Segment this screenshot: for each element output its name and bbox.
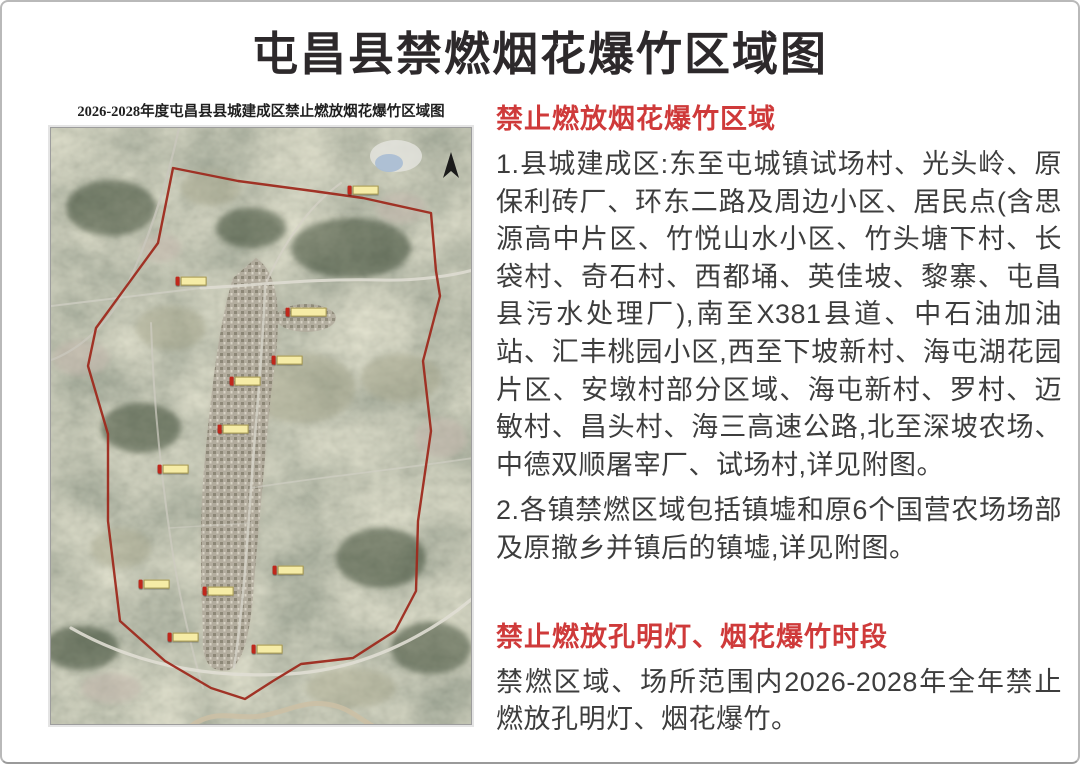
marker-label bbox=[352, 185, 378, 194]
paragraph-town-areas: 2.各镇禁燃区域包括镇墟和原6个国营农场场部及原撤乡并镇后的镇墟,详见附图。 bbox=[496, 492, 1062, 567]
pin-icon bbox=[252, 644, 256, 653]
pin-icon bbox=[158, 465, 162, 474]
pin-icon bbox=[272, 356, 276, 365]
map-marker bbox=[168, 632, 199, 641]
map-marker bbox=[273, 566, 304, 575]
paragraph-county-built-area: 1.县城建成区:东至屯城镇试场村、光头岭、原保利砖厂、环东二路及周边小区、居民点… bbox=[496, 146, 1062, 484]
pin-icon bbox=[285, 308, 289, 317]
marker-label bbox=[278, 566, 304, 575]
map-marker bbox=[218, 425, 249, 434]
pin-icon bbox=[203, 586, 207, 595]
section-zones: 禁止燃放烟花爆竹区域 1.县城建成区:东至屯城镇试场村、光头岭、原保利砖厂、环东… bbox=[496, 100, 1062, 568]
section-period-heading: 禁止燃放孔明灯、烟花爆竹时段 bbox=[496, 618, 1062, 656]
map-marker bbox=[175, 277, 206, 286]
pin-icon bbox=[168, 632, 172, 641]
marker-label bbox=[173, 632, 199, 641]
map-marker bbox=[203, 586, 234, 595]
marker-label bbox=[180, 277, 206, 286]
paragraph-period: 禁燃区域、场所范围内2026-2028年全年禁止燃放孔明灯、烟花爆竹。 bbox=[496, 664, 1062, 739]
map-marker bbox=[138, 579, 169, 588]
map-marker bbox=[347, 185, 378, 194]
content-column: 禁止燃放烟花爆竹区域 1.县城建成区:东至屯城镇试场村、光头岭、原保利砖厂、环东… bbox=[496, 100, 1062, 739]
map-marker bbox=[252, 644, 283, 653]
marker-label bbox=[277, 356, 303, 365]
page-title: 屯昌县禁燃烟花爆竹区域图 bbox=[2, 18, 1078, 84]
marker-label bbox=[235, 376, 261, 385]
marker-label bbox=[290, 308, 326, 317]
map-figure: 2026-2028年度屯昌县县城建成区禁止燃放烟花爆竹区域图 bbox=[50, 100, 472, 725]
pin-icon bbox=[218, 425, 222, 434]
marker-label bbox=[143, 579, 169, 588]
pin-icon bbox=[347, 185, 351, 194]
map-marker bbox=[230, 376, 261, 385]
map-caption: 2026-2028年度屯昌县县城建成区禁止燃放烟花爆竹区域图 bbox=[50, 100, 472, 121]
map-marker bbox=[158, 465, 189, 474]
map-marker bbox=[285, 308, 326, 317]
poster: 屯昌县禁燃烟花爆竹区域图 2026-2028年度屯昌县县城建成区禁止燃放烟花爆竹… bbox=[0, 0, 1080, 764]
map-marker bbox=[272, 356, 303, 365]
pin-icon bbox=[175, 277, 179, 286]
section-period: 禁止燃放孔明灯、烟花爆竹时段 禁燃区域、场所范围内2026-2028年全年禁止燃… bbox=[496, 618, 1062, 739]
pin-icon bbox=[273, 566, 277, 575]
marker-label bbox=[163, 465, 189, 474]
map-markers bbox=[51, 128, 471, 724]
marker-label bbox=[208, 586, 234, 595]
marker-label bbox=[257, 644, 283, 653]
section-zones-heading: 禁止燃放烟花爆竹区域 bbox=[496, 100, 1062, 138]
pin-icon bbox=[138, 579, 142, 588]
satellite-map bbox=[50, 127, 472, 725]
pin-icon bbox=[230, 376, 234, 385]
marker-label bbox=[223, 425, 249, 434]
